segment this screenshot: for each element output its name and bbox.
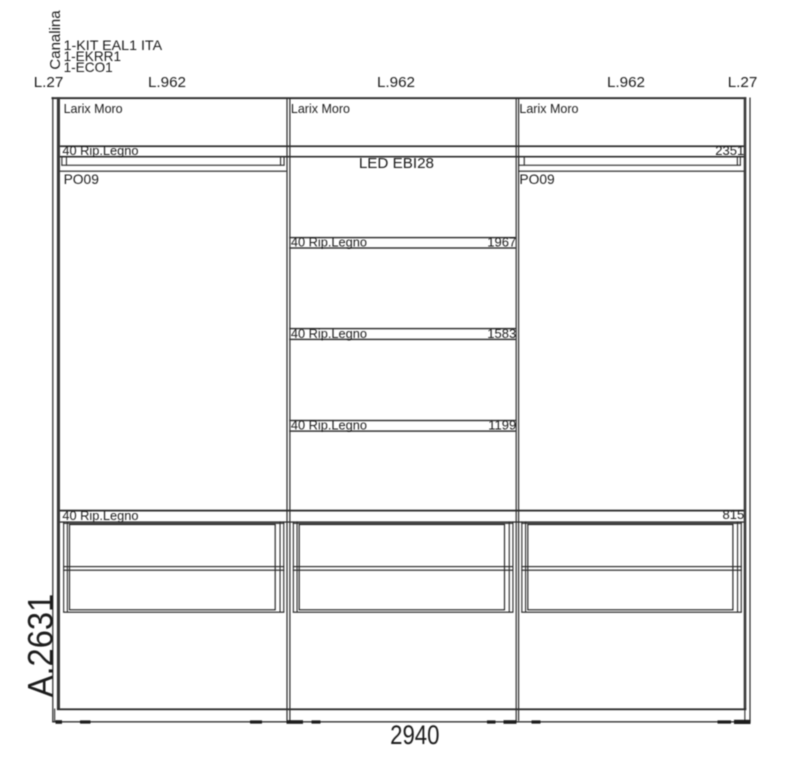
svg-text:L.962: L.962 [377, 74, 415, 91]
svg-text:40 Rip.Legno: 40 Rip.Legno [291, 418, 367, 433]
svg-text:Larix Moro: Larix Moro [291, 102, 350, 116]
svg-text:40 Rip.Legno: 40 Rip.Legno [62, 508, 138, 523]
svg-text:Larix Moro: Larix Moro [519, 102, 578, 116]
svg-text:1583: 1583 [487, 326, 516, 341]
svg-text:PO09: PO09 [519, 172, 555, 187]
svg-text:815: 815 [722, 507, 744, 522]
svg-text:Larix Moro: Larix Moro [64, 102, 123, 116]
svg-text:LED EBI28: LED EBI28 [359, 155, 434, 172]
svg-text:40 Rip.Legno: 40 Rip.Legno [291, 234, 367, 249]
svg-text:2351: 2351 [715, 143, 744, 158]
svg-text:1967: 1967 [487, 234, 516, 249]
svg-text:L.962: L.962 [148, 74, 186, 91]
svg-text:2940: 2940 [390, 720, 439, 750]
svg-text:40 Rip.Legno: 40 Rip.Legno [62, 143, 138, 158]
svg-text:Canalina: Canalina [47, 10, 64, 70]
svg-text:1-ECO1: 1-ECO1 [64, 60, 113, 75]
svg-text:PO09: PO09 [64, 172, 100, 187]
svg-text:L.27: L.27 [34, 74, 64, 91]
svg-text:40 Rip.Legno: 40 Rip.Legno [291, 326, 367, 341]
svg-text:L.962: L.962 [607, 74, 645, 91]
svg-text:A.2631: A.2631 [22, 594, 61, 698]
svg-text:L.27: L.27 [728, 74, 758, 91]
svg-text:1199: 1199 [488, 418, 516, 433]
